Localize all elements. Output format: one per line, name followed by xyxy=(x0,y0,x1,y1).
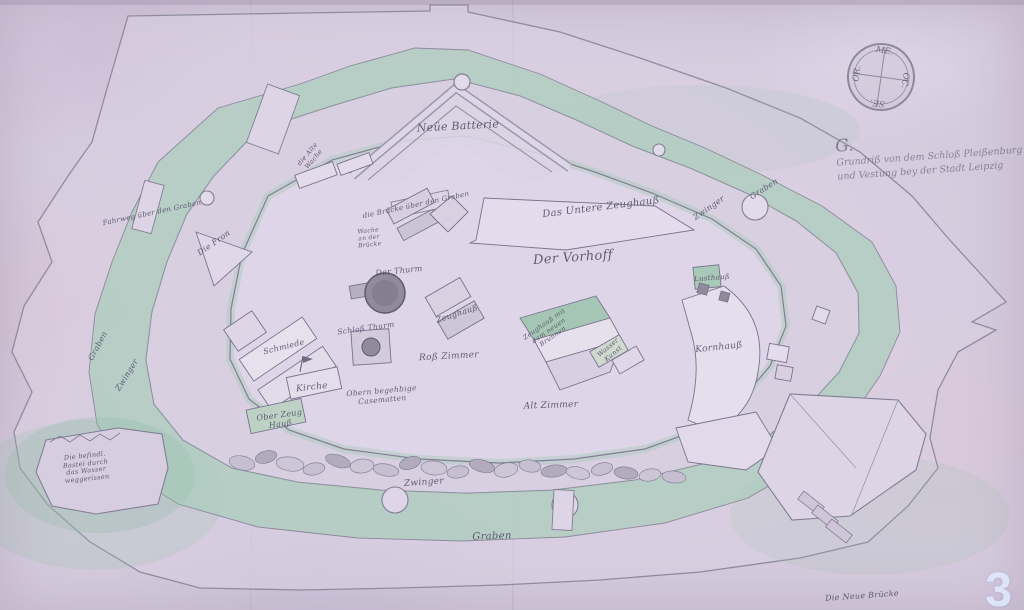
castle-tower xyxy=(351,329,391,366)
washed-away-bastion xyxy=(5,417,195,533)
bastion-turret xyxy=(454,74,470,90)
scanned-map-page: Neüe Batteriedie Alte WacheFahrweg über … xyxy=(0,0,1024,610)
compass-rose: ME. OC. SE. OR. xyxy=(837,33,925,121)
compass-label-bottom: SE. xyxy=(869,97,885,109)
page-number: 3 xyxy=(985,563,1012,610)
